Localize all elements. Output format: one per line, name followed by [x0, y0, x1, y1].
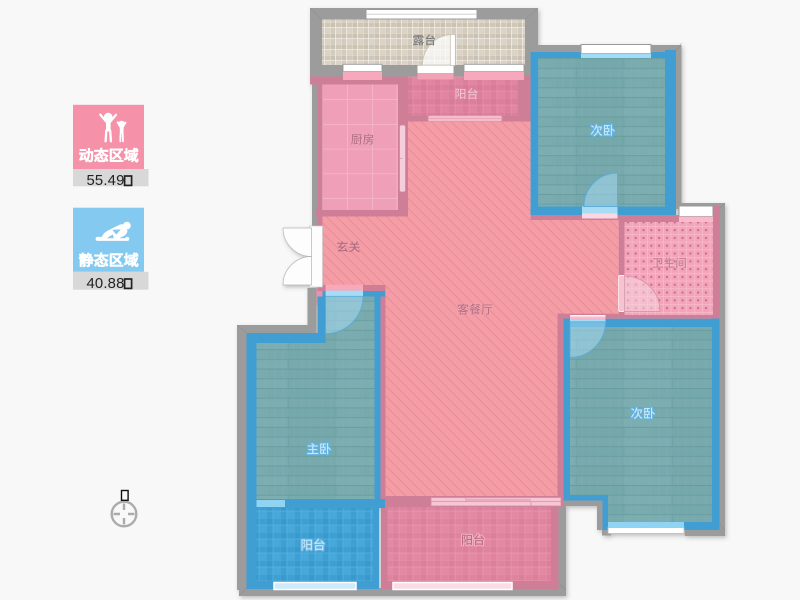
- svg-text:55.49: 55.49: [87, 173, 125, 189]
- svg-text:40.88: 40.88: [87, 276, 125, 292]
